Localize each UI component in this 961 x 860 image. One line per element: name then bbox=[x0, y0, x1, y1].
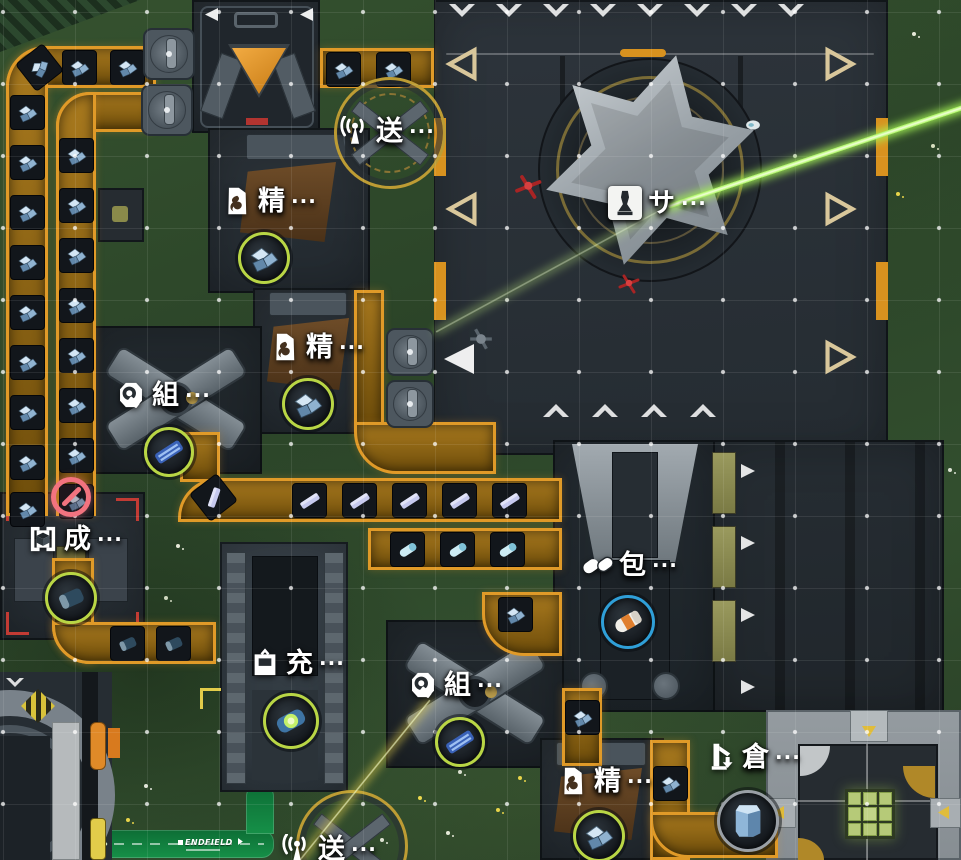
refine-icon bbox=[222, 186, 252, 216]
chev-down bbox=[590, 4, 616, 17]
assemble-icon bbox=[116, 380, 146, 410]
belt-item-ingot bbox=[392, 483, 427, 518]
belt-item-capsule bbox=[490, 532, 525, 567]
grabber-pivot bbox=[164, 107, 170, 113]
chev-down bbox=[684, 4, 710, 17]
out-of-bounds-stripes bbox=[0, 0, 140, 52]
label-ellipsis: ··· bbox=[681, 193, 707, 213]
grabber-pivot bbox=[166, 51, 172, 57]
belt-item-ingot bbox=[442, 483, 477, 518]
edge-light-left-2 bbox=[434, 262, 446, 320]
chev-down bbox=[449, 4, 475, 17]
refine-icon bbox=[270, 332, 300, 362]
grass-flower bbox=[126, 818, 130, 822]
warehouse-power-grid[interactable] bbox=[845, 789, 895, 839]
column-shadow-1 bbox=[775, 442, 785, 710]
grid-cell bbox=[863, 823, 876, 836]
belt-item-ore bbox=[59, 338, 94, 373]
tri-left-outline bbox=[444, 191, 480, 227]
belt-item-ingot bbox=[342, 483, 377, 518]
pack-icon bbox=[583, 550, 613, 580]
red-operator[interactable] bbox=[616, 272, 640, 296]
belt-item-ore bbox=[59, 288, 94, 323]
crusher-status-bar bbox=[246, 118, 268, 125]
gray-drone[interactable] bbox=[468, 326, 494, 352]
belt-item-ore bbox=[10, 245, 45, 280]
belt-item-ore bbox=[10, 492, 45, 527]
grabber-machine[interactable] bbox=[141, 84, 193, 136]
machine-name: 充 bbox=[286, 650, 313, 677]
grass-flower bbox=[912, 32, 916, 36]
label-ellipsis: ··· bbox=[339, 337, 365, 357]
chev-down bbox=[731, 4, 757, 17]
label-ellipsis: ··· bbox=[319, 653, 345, 673]
tri-left-outline bbox=[444, 46, 480, 82]
corner-bracket-yellow bbox=[200, 688, 221, 709]
label-ellipsis: ··· bbox=[185, 385, 211, 405]
refiner2-hood bbox=[269, 292, 347, 316]
belt-item-ingot bbox=[292, 483, 327, 518]
tri-right-outline bbox=[822, 191, 858, 227]
chev-down bbox=[496, 4, 522, 17]
grid-cell bbox=[848, 823, 861, 836]
machine-name: 成 bbox=[64, 526, 91, 553]
chev-down bbox=[637, 4, 663, 17]
platform-right-mid[interactable] bbox=[712, 440, 944, 712]
grid-cell bbox=[879, 792, 892, 805]
chev-down bbox=[543, 4, 569, 17]
tri-left-fill bbox=[205, 8, 218, 21]
machine-name: 組 bbox=[152, 382, 179, 409]
edge-light-right-2 bbox=[876, 262, 888, 320]
belt-item-ore bbox=[59, 388, 94, 423]
belt-item-ore bbox=[110, 50, 145, 85]
item-ring-refiner-2[interactable] bbox=[282, 378, 334, 430]
machine-name: 倉 bbox=[742, 744, 769, 771]
belt-item-ore bbox=[565, 700, 600, 735]
label-ellipsis: ··· bbox=[291, 191, 317, 211]
aux-box-lamp bbox=[112, 206, 128, 222]
belt-item-ore bbox=[59, 188, 94, 223]
chev-up bbox=[592, 404, 618, 417]
item-ring-refiner-3[interactable] bbox=[573, 810, 625, 860]
belt-item-ore bbox=[498, 597, 533, 632]
machine-label-transmitter-top[interactable]: 送··· bbox=[340, 116, 435, 146]
item-ring-charger[interactable] bbox=[263, 693, 319, 749]
edge-light-right-1 bbox=[876, 118, 888, 176]
item-ring-assembler-2[interactable] bbox=[435, 717, 485, 767]
belt-item-ore bbox=[10, 445, 45, 480]
machine-name: 送 bbox=[318, 836, 345, 860]
grass-flower bbox=[418, 796, 422, 800]
grabber-machine[interactable] bbox=[143, 28, 195, 80]
belt-item-ore bbox=[10, 145, 45, 180]
road-chevron-small-icon bbox=[238, 838, 243, 845]
structure-light-block bbox=[52, 722, 80, 860]
grid-cell bbox=[879, 807, 892, 820]
grabber-pivot bbox=[407, 401, 413, 407]
tri-right-outline bbox=[822, 339, 858, 375]
chev-up bbox=[641, 404, 667, 417]
grass-flower bbox=[446, 831, 450, 835]
chev-down bbox=[778, 4, 804, 17]
belt-item-ore bbox=[653, 766, 688, 801]
assemble-icon bbox=[408, 670, 438, 700]
packer-disc-right bbox=[652, 672, 680, 700]
machine-label-refiner-2[interactable]: 精··· bbox=[270, 332, 365, 362]
item-ring-refiner-1[interactable] bbox=[238, 232, 290, 284]
grass-flower bbox=[496, 808, 500, 812]
machine-label-assembler-2[interactable]: 組··· bbox=[408, 670, 503, 700]
tri-right-fill bbox=[741, 608, 755, 622]
grabber-machine[interactable] bbox=[386, 380, 434, 428]
label-ellipsis: ··· bbox=[652, 555, 678, 575]
grass-flower bbox=[931, 144, 935, 148]
silo-icon bbox=[608, 186, 642, 220]
marker-yellow-pill bbox=[90, 818, 106, 860]
item-ring-packer[interactable] bbox=[601, 595, 655, 649]
grabber-pivot bbox=[407, 349, 413, 355]
machine-name: サ bbox=[648, 190, 675, 217]
grid-cell bbox=[848, 792, 861, 805]
platform-divider-notch bbox=[620, 49, 666, 57]
machine-label-assembler-1[interactable]: 組··· bbox=[116, 380, 211, 410]
label-ellipsis: ··· bbox=[97, 529, 123, 549]
belt-item-ore bbox=[62, 50, 97, 85]
belt-item-ore bbox=[10, 195, 45, 230]
belt-item-ore bbox=[59, 238, 94, 273]
grass-flower bbox=[458, 770, 462, 774]
grass-flower bbox=[896, 192, 900, 196]
grid-cell bbox=[848, 807, 861, 820]
belt-item-ore bbox=[10, 395, 45, 430]
charger-column-left bbox=[226, 552, 246, 784]
machine-name: 組 bbox=[444, 672, 471, 699]
road-logo-icon bbox=[178, 840, 183, 845]
form-icon bbox=[28, 524, 58, 554]
label-ellipsis: ··· bbox=[627, 771, 653, 791]
machine-name: 精 bbox=[594, 768, 621, 795]
charge-icon bbox=[250, 648, 280, 678]
former-bracket-bl bbox=[6, 612, 29, 635]
grass-flower bbox=[518, 776, 522, 780]
machine-name: 包 bbox=[619, 552, 646, 579]
white-drone[interactable] bbox=[742, 114, 764, 136]
blocked-slash bbox=[60, 486, 81, 507]
belt-item-ore bbox=[10, 345, 45, 380]
road-sub-line bbox=[186, 849, 220, 851]
grass-flower bbox=[144, 784, 148, 788]
belt-item-capsule bbox=[390, 532, 425, 567]
former-bracket-tr bbox=[116, 498, 139, 521]
grid-cell bbox=[863, 807, 876, 820]
tri-right-fill bbox=[741, 464, 755, 478]
marker-orange-pill bbox=[90, 722, 106, 770]
antenna-icon bbox=[340, 116, 370, 146]
belt-item-ore bbox=[59, 138, 94, 173]
label-ellipsis: ··· bbox=[409, 121, 435, 141]
antenna-icon bbox=[282, 834, 312, 860]
marker-orange-bar bbox=[108, 728, 120, 758]
item-ring-warehouse[interactable] bbox=[717, 790, 779, 852]
vent-strip-3 bbox=[712, 600, 736, 662]
packer-slot bbox=[612, 452, 658, 558]
crusher-handle bbox=[234, 12, 278, 28]
grass-flower bbox=[948, 468, 952, 472]
blocked-status-icon bbox=[51, 477, 91, 517]
belt-item-ore bbox=[10, 95, 45, 130]
machine-label-transmitter-bottom[interactable]: 送··· bbox=[282, 834, 377, 860]
tri-right-outline bbox=[822, 46, 858, 82]
belt-item-ore bbox=[326, 52, 361, 87]
machine-label-refiner-3[interactable]: 精··· bbox=[558, 766, 653, 796]
item-ring-assembler-1[interactable] bbox=[144, 427, 194, 477]
machine-label-warehouse[interactable]: 倉··· bbox=[706, 742, 801, 772]
column-shadow-3 bbox=[915, 442, 925, 710]
refiner1-hood bbox=[246, 134, 346, 160]
machine-name: 送 bbox=[376, 118, 403, 145]
machine-name: 精 bbox=[258, 188, 285, 215]
label-ellipsis: ··· bbox=[775, 747, 801, 767]
machine-label-charger[interactable]: 充··· bbox=[250, 648, 345, 678]
conveyor-belt[interactable] bbox=[354, 422, 496, 474]
vent-strip-2 bbox=[712, 526, 736, 588]
belt-item-capsule bbox=[440, 532, 475, 567]
chev-up bbox=[690, 404, 716, 417]
grass-flower bbox=[164, 596, 168, 600]
column-shadow-2 bbox=[845, 442, 855, 710]
machine-label-silo-tower[interactable]: サ··· bbox=[608, 186, 707, 220]
label-ellipsis: ··· bbox=[477, 675, 503, 695]
machine-label-packer[interactable]: 包··· bbox=[583, 550, 678, 580]
road-label-text: ENDFIELD bbox=[185, 838, 233, 847]
chev-up bbox=[543, 404, 569, 417]
belt-item-ore bbox=[59, 438, 94, 473]
tri-left-fill bbox=[300, 8, 313, 21]
tri-right-fill bbox=[741, 680, 755, 694]
belt-item-cell bbox=[156, 626, 191, 661]
red-operator[interactable] bbox=[512, 172, 542, 202]
belt-item-ingot bbox=[492, 483, 527, 518]
factory-map: ENDFIELD 送···精···サ···精···組···成···包···充··… bbox=[0, 0, 961, 860]
belt-item-ore bbox=[10, 295, 45, 330]
belt-item-cell bbox=[110, 626, 145, 661]
machine-name: 精 bbox=[306, 334, 333, 361]
machine-label-refiner-1[interactable]: 精··· bbox=[222, 186, 317, 216]
road-label: ENDFIELD bbox=[178, 838, 243, 847]
grid-cell bbox=[879, 823, 892, 836]
endfield-road-stub bbox=[246, 786, 274, 834]
warehouse-icon bbox=[706, 742, 736, 772]
structure-dark-block bbox=[0, 736, 50, 860]
vent-strip-1 bbox=[712, 452, 736, 514]
chev-down bbox=[6, 678, 24, 687]
grass-flower bbox=[176, 544, 180, 548]
grabber-machine[interactable] bbox=[386, 328, 434, 376]
grid-cell bbox=[863, 792, 876, 805]
machine-label-former[interactable]: 成··· bbox=[28, 524, 123, 554]
refine-icon bbox=[558, 766, 588, 796]
item-ring-former[interactable] bbox=[45, 572, 97, 624]
label-ellipsis: ··· bbox=[351, 839, 377, 859]
tri-right-fill bbox=[741, 536, 755, 550]
